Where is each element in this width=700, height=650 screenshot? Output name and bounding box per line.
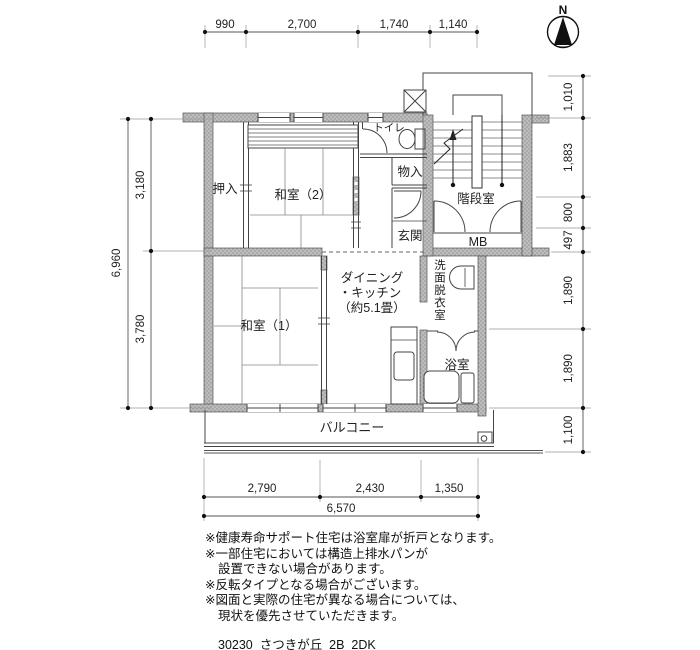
note-line: 設置できない場合があります。 bbox=[205, 562, 535, 578]
stairwell bbox=[423, 73, 532, 233]
room-label-dk-2: ・キッチン bbox=[339, 286, 402, 300]
drawing-id: 30230_さつきが丘_2B_2DK bbox=[218, 634, 376, 650]
washitsu2-closet-band bbox=[248, 125, 358, 148]
stair-tower-outline bbox=[423, 73, 532, 115]
room-label-monoire: 物入 bbox=[397, 165, 423, 179]
wall-stair-right bbox=[522, 115, 532, 256]
floor-plan-page: N 990 2,700 1,740 1,140 6,960 3,180 3,78… bbox=[0, 0, 700, 650]
dim-bottom-total: 6,570 bbox=[327, 503, 356, 515]
notes-block: ※健康寿命サポート住宅は浴室扉が折戸となります。 ※一部住宅においては構造上排水… bbox=[205, 531, 535, 624]
dim-right-1: 1,010 bbox=[563, 83, 575, 112]
wall-left bbox=[204, 113, 213, 410]
note-line: ※健康寿命サポート住宅は浴室扉が折戸となります。 bbox=[205, 531, 535, 547]
dim-bottom-3: 1,350 bbox=[435, 483, 464, 495]
dim-left-2: 3,780 bbox=[135, 315, 147, 344]
dim-top-3: 1,740 bbox=[380, 19, 409, 31]
wall-stub-right bbox=[532, 115, 549, 123]
dim-left-total: 6,960 bbox=[111, 249, 123, 278]
note-line: ※反転タイプとなる場合がございます。 bbox=[205, 578, 535, 594]
room-label-mb: MB bbox=[469, 235, 488, 249]
walls bbox=[183, 113, 549, 416]
stair-landing-outline bbox=[453, 95, 502, 115]
stair-break-symbol bbox=[434, 129, 463, 164]
wall-middle-left bbox=[204, 248, 322, 256]
dim-bottom-1: 2,790 bbox=[248, 483, 277, 495]
bath-pan bbox=[461, 373, 474, 403]
north-needle-icon bbox=[554, 17, 572, 45]
wall-right-lower bbox=[478, 256, 486, 416]
room-label-washitsu1: 和室（1） bbox=[241, 318, 298, 333]
washbasin bbox=[450, 266, 475, 289]
north-label: N bbox=[559, 3, 568, 17]
room-label-dk-3: （約5.1畳） bbox=[338, 300, 405, 315]
note-line: ※一部住宅においては構造上排水パンが bbox=[205, 547, 535, 563]
room-label-genkan: 玄関 bbox=[397, 228, 422, 243]
bath-folding-door-left bbox=[437, 332, 456, 351]
dim-top-2: 2,700 bbox=[288, 19, 317, 31]
room-label-toilet: トイレ bbox=[373, 122, 405, 134]
room-label-kaidan: 階段室 bbox=[457, 191, 495, 206]
bathtub bbox=[424, 371, 459, 403]
wall-senmen-left bbox=[420, 256, 427, 302]
dim-bottom-2: 2,430 bbox=[356, 483, 385, 495]
dim-right-3: 800 bbox=[563, 203, 575, 222]
room-label-washitsu2: 和室（2） bbox=[275, 187, 332, 202]
stair-handrail bbox=[472, 116, 482, 188]
dim-right-2: 1,883 bbox=[563, 143, 575, 172]
room-label-balcony: バルコニー bbox=[320, 420, 385, 435]
dim-right-4: 497 bbox=[563, 230, 575, 249]
compass bbox=[548, 17, 579, 48]
dim-right-6: 1,890 bbox=[563, 354, 575, 383]
dim-top-4: 1,140 bbox=[439, 19, 468, 31]
dim-right-7: 1,100 bbox=[563, 416, 575, 445]
room-label-oshiire: 押入 bbox=[212, 182, 238, 196]
dim-left-1: 3,180 bbox=[135, 171, 147, 200]
kitchen-counter bbox=[391, 327, 417, 404]
note-line: ※図面と実際の住宅が異なる場合については、 bbox=[205, 593, 535, 609]
room-label-dk-1: ダイニング bbox=[341, 270, 404, 285]
dim-top-1: 990 bbox=[215, 19, 234, 31]
genkan-door-arc bbox=[394, 191, 421, 218]
dim-right-5: 1,890 bbox=[563, 276, 575, 305]
room-label-bath: 浴室 bbox=[444, 357, 469, 372]
room-label-senmen: 洗面脱衣室 bbox=[431, 259, 447, 329]
bath-folding-door-right bbox=[456, 332, 475, 351]
note-line: 現状を優先させていただきます。 bbox=[205, 609, 535, 625]
